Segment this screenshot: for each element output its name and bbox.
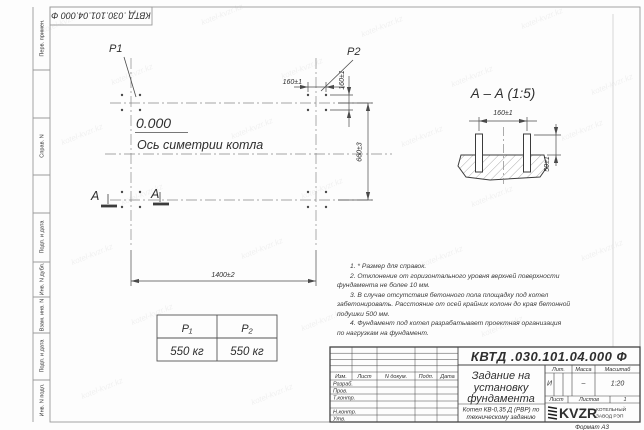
tb-massa-value: – — [581, 381, 586, 388]
kvzr-logo: KVZR КОТЕЛЬНЫЙ ЗАВОД РЭП — [548, 405, 627, 421]
section-title: А – А (1:5) — [470, 86, 536, 101]
load-table-col2-header: P₂ — [241, 323, 253, 335]
plan-p2-label: P2 — [347, 46, 360, 58]
dim-1400-text: 1400±2 — [211, 272, 234, 279]
subtitle-line-2: техническому заданию — [466, 413, 535, 421]
tb-list-label: Лист — [548, 397, 564, 403]
tb-header-izm: Изм. — [335, 374, 347, 380]
tb-header-list: Лист — [356, 374, 372, 380]
note-line: забетонировать. Расстояние от осей крайн… — [337, 300, 577, 310]
note-line: 4. Фундамент под котел разрабатывает про… — [337, 319, 577, 329]
tb-row-razrab: Разраб. — [333, 382, 353, 388]
section-dim-160-text: 160±1 — [493, 110, 513, 117]
concrete-block — [458, 155, 547, 180]
margin-label-invdubl: Инв. N дубл. — [40, 262, 46, 295]
margin-label-podp2: Подп. и дата — [40, 339, 46, 373]
load-table-col1-value: 550 кг — [170, 346, 204, 358]
anchor-bolt-left — [476, 134, 483, 172]
dim-160-top-text: 160±1 — [283, 79, 303, 86]
plan-view: P1 P2 0.000 Ось симетрии котла 160±1 160… — [90, 43, 392, 286]
plan-p1-label: P1 — [109, 43, 122, 55]
margin-label-vzam: Взам. инв. N — [40, 299, 46, 332]
load-table-col1-header: P₁ — [182, 323, 193, 335]
section-view: А – А (1:5) 160±1 50±1 — [458, 86, 561, 184]
margin-label-podp1: Подп. и дата — [40, 220, 46, 254]
load-table: P₁ P₂ 550 кг 550 кг — [157, 315, 277, 361]
elevation-mark: 0.000 — [136, 115, 171, 131]
dim-160-right-text: 160±1 — [339, 70, 346, 90]
dim-660-text: 660±3 — [357, 142, 364, 162]
tb-header-dokum: N докум. — [385, 374, 407, 380]
note-line: 3. В случае отсутствия бетонного пола пл… — [337, 291, 577, 301]
tb-header-podp: Подп. — [419, 374, 434, 380]
note-line: 2. Отклонение от горизонтального уровня … — [337, 272, 577, 282]
subtitle-line-1: Котел КВ-0,35 Д (РВР) по — [463, 407, 540, 414]
section-dim-50-text: 50±1 — [544, 156, 551, 172]
company-line-1: КОТЕЛЬНЫЙ — [596, 405, 627, 413]
tb-row-tkontr: Т.контр. — [333, 396, 355, 402]
title-block: КВТД .030.101.04.000 Ф Задание на устано… — [330, 347, 640, 423]
notes-block: 1. * Размер для справок. 2. Отклонение о… — [337, 262, 577, 338]
load-table-col2-value: 550 кг — [230, 346, 264, 358]
kvzr-logo-text: KVZR — [559, 405, 597, 421]
tb-lit-value: И — [547, 381, 553, 388]
dim-660 — [338, 103, 373, 200]
format-label: Формат А3 — [575, 424, 609, 430]
tb-row-prov: Пров. — [333, 389, 348, 395]
margin-label-sprav: Справ. N — [40, 134, 46, 157]
note-line: по нагрузкам на фундамент. — [337, 329, 577, 339]
load-leaders — [124, 57, 353, 97]
tb-header-data: Дата — [439, 374, 455, 380]
title-line-3: фундамента — [467, 393, 535, 405]
dim-1400 — [131, 250, 316, 286]
tb-masshtab-header: Масштаб — [605, 367, 632, 373]
note-line: подушки 500 мм. — [337, 310, 577, 320]
section-mark-letter-2: А — [150, 187, 159, 201]
note-line: фундамента не более 10 мм. — [337, 281, 577, 291]
tb-listov-value: 1 — [623, 397, 626, 403]
coil-icon — [548, 407, 557, 419]
tb-massa-header: Масса — [575, 367, 591, 373]
anchor-bolt-right — [524, 134, 531, 172]
drawing-sheet: { "colors": { "ink": "#2f2f2f", "frame":… — [0, 0, 644, 430]
section-mark-letter-1: А — [90, 189, 99, 203]
tb-row-nkontr: Н.контр. — [333, 410, 356, 416]
margin-label-invpodl: Инв. N подл. — [40, 383, 46, 416]
drawing-canvas: КВТД .030.101.04.000 Ф Перв. примен. Спр… — [0, 0, 644, 430]
top-stamp-doc-number: КВТД .030.101.04.000 Ф — [51, 11, 151, 21]
note-line: 1. * Размер для справок. — [337, 262, 577, 272]
title-line-1: Задание на — [472, 370, 531, 382]
tb-masshtab-value: 1:20 — [611, 381, 625, 388]
margin-label-perv: Перв. примен. — [40, 19, 46, 57]
margin-labels: Перв. примен. Справ. N Подп. и дата Инв.… — [40, 19, 46, 416]
tb-listov-label: Листов — [578, 397, 599, 403]
tb-lit-header: Лит. — [551, 367, 565, 373]
section-dim-160 — [469, 117, 537, 131]
axis-label: Ось симетрии котла — [137, 138, 263, 152]
tb-row-utv: Утв. — [332, 417, 346, 423]
company-line-2: ЗАВОД РЭП — [596, 414, 624, 420]
title-block-doc-number: КВТД .030.101.04.000 Ф — [471, 349, 628, 364]
